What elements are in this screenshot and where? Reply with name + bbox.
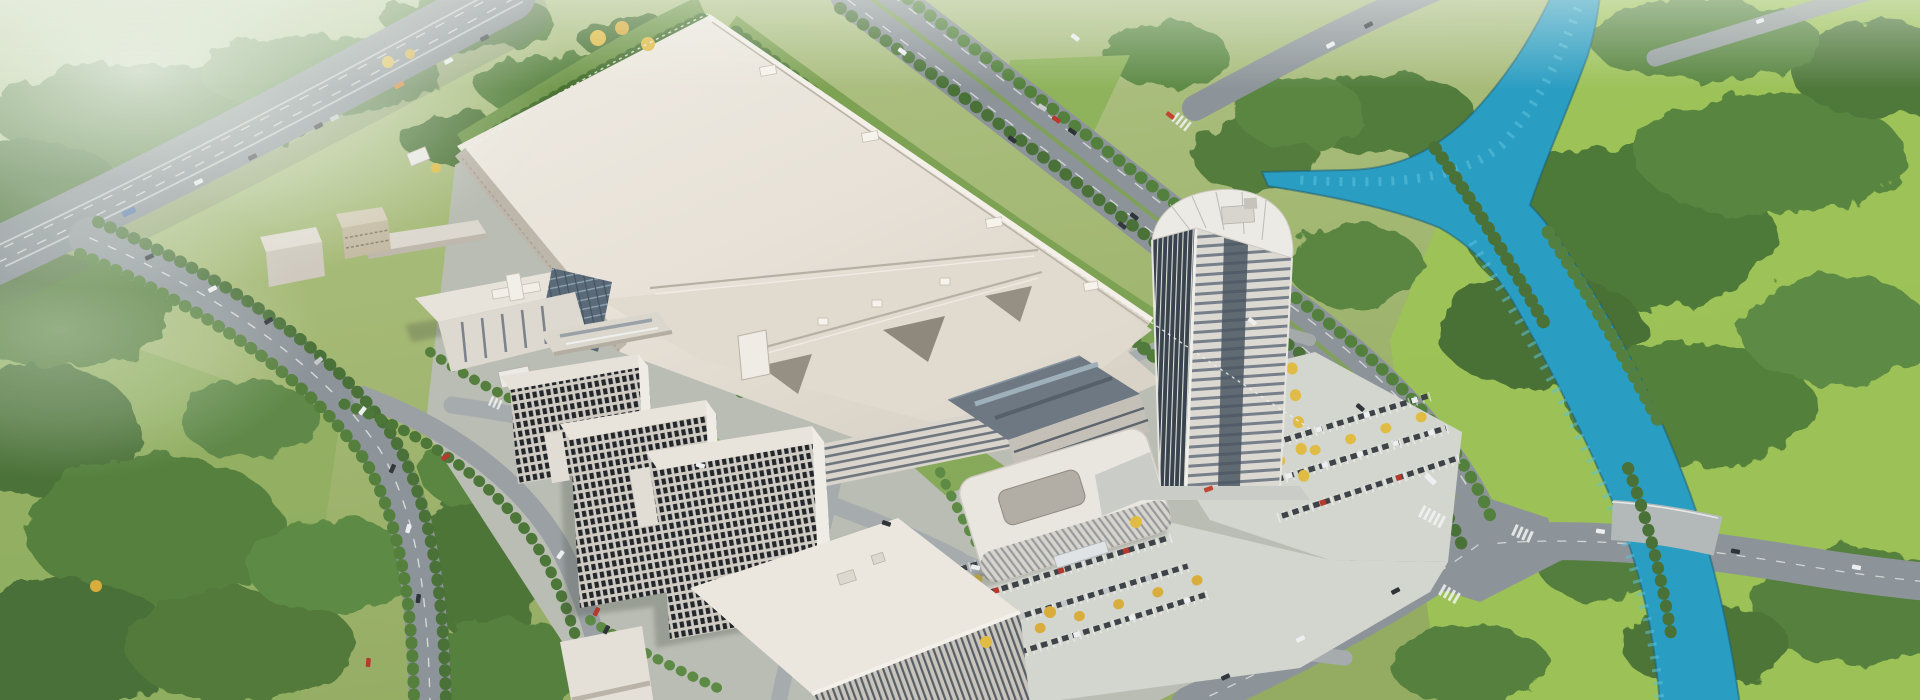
aerial-campus-rendering bbox=[0, 0, 1920, 700]
tower-roof-box-2 bbox=[1244, 198, 1258, 210]
scene-canvas bbox=[0, 0, 1920, 700]
conveyor-bridge bbox=[738, 330, 770, 380]
river-bridge-deck bbox=[1612, 520, 1718, 536]
